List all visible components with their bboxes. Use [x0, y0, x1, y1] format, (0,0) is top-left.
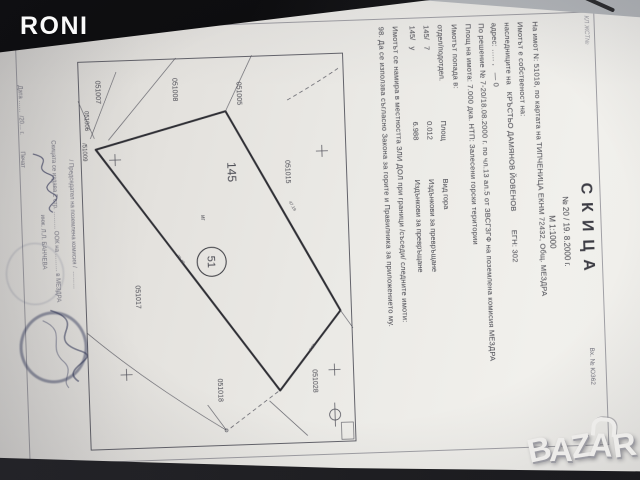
bazar-logo: B A Z A R — [526, 424, 637, 466]
benchmark-symbol — [329, 402, 341, 426]
neighbor-parcel-label: 051015 — [283, 160, 291, 184]
main-parcel-boundary — [95, 107, 344, 396]
bazar-letter: A — [588, 428, 613, 462]
handwritten-signature — [23, 150, 65, 215]
sketch-document: КЛ ЖСТ№ Вх. № Ю362 СКИЦА № 20 / 19. 8.20… — [0, 0, 640, 480]
photo-owner-watermark: RONI — [20, 12, 89, 41]
neighbor-parcel-label: 051008 — [170, 78, 178, 102]
neighbor-parcel-label: 051017 — [133, 285, 141, 309]
frame-corner-box — [341, 422, 354, 439]
photo-of-document: КЛ ЖСТ№ Вх. № Ю362 СКИЦА № 20 / 19. 8.20… — [0, 0, 640, 480]
parcel-number: 51 — [204, 255, 216, 268]
neighbor-parcel-label: 051005 — [234, 82, 242, 106]
neighbor-parcel-label: 051006 — [82, 111, 89, 132]
neighbor-parcel-label: 051028 — [311, 369, 319, 393]
col-forest-type: Вид гора — [441, 178, 451, 209]
dashed-boundaries — [215, 68, 350, 430]
neighbor-parcel-label: /51009 — [80, 143, 87, 162]
edge-length-label: 29.40 — [176, 254, 187, 266]
bazar-letter: R — [610, 427, 638, 463]
subparcel-label: иг — [199, 215, 205, 222]
edge-length-label: 47.19 — [288, 200, 298, 212]
neighbor-parcel-label: 051007 — [93, 81, 101, 105]
compartment-label: 145 — [224, 162, 239, 183]
neighbor-parcel-label: 051018 — [216, 378, 224, 402]
stamp-signature-scribble — [30, 301, 105, 395]
cadastral-map: 51 145 иг 051005 051008 051007 051006 /5… — [76, 52, 357, 451]
